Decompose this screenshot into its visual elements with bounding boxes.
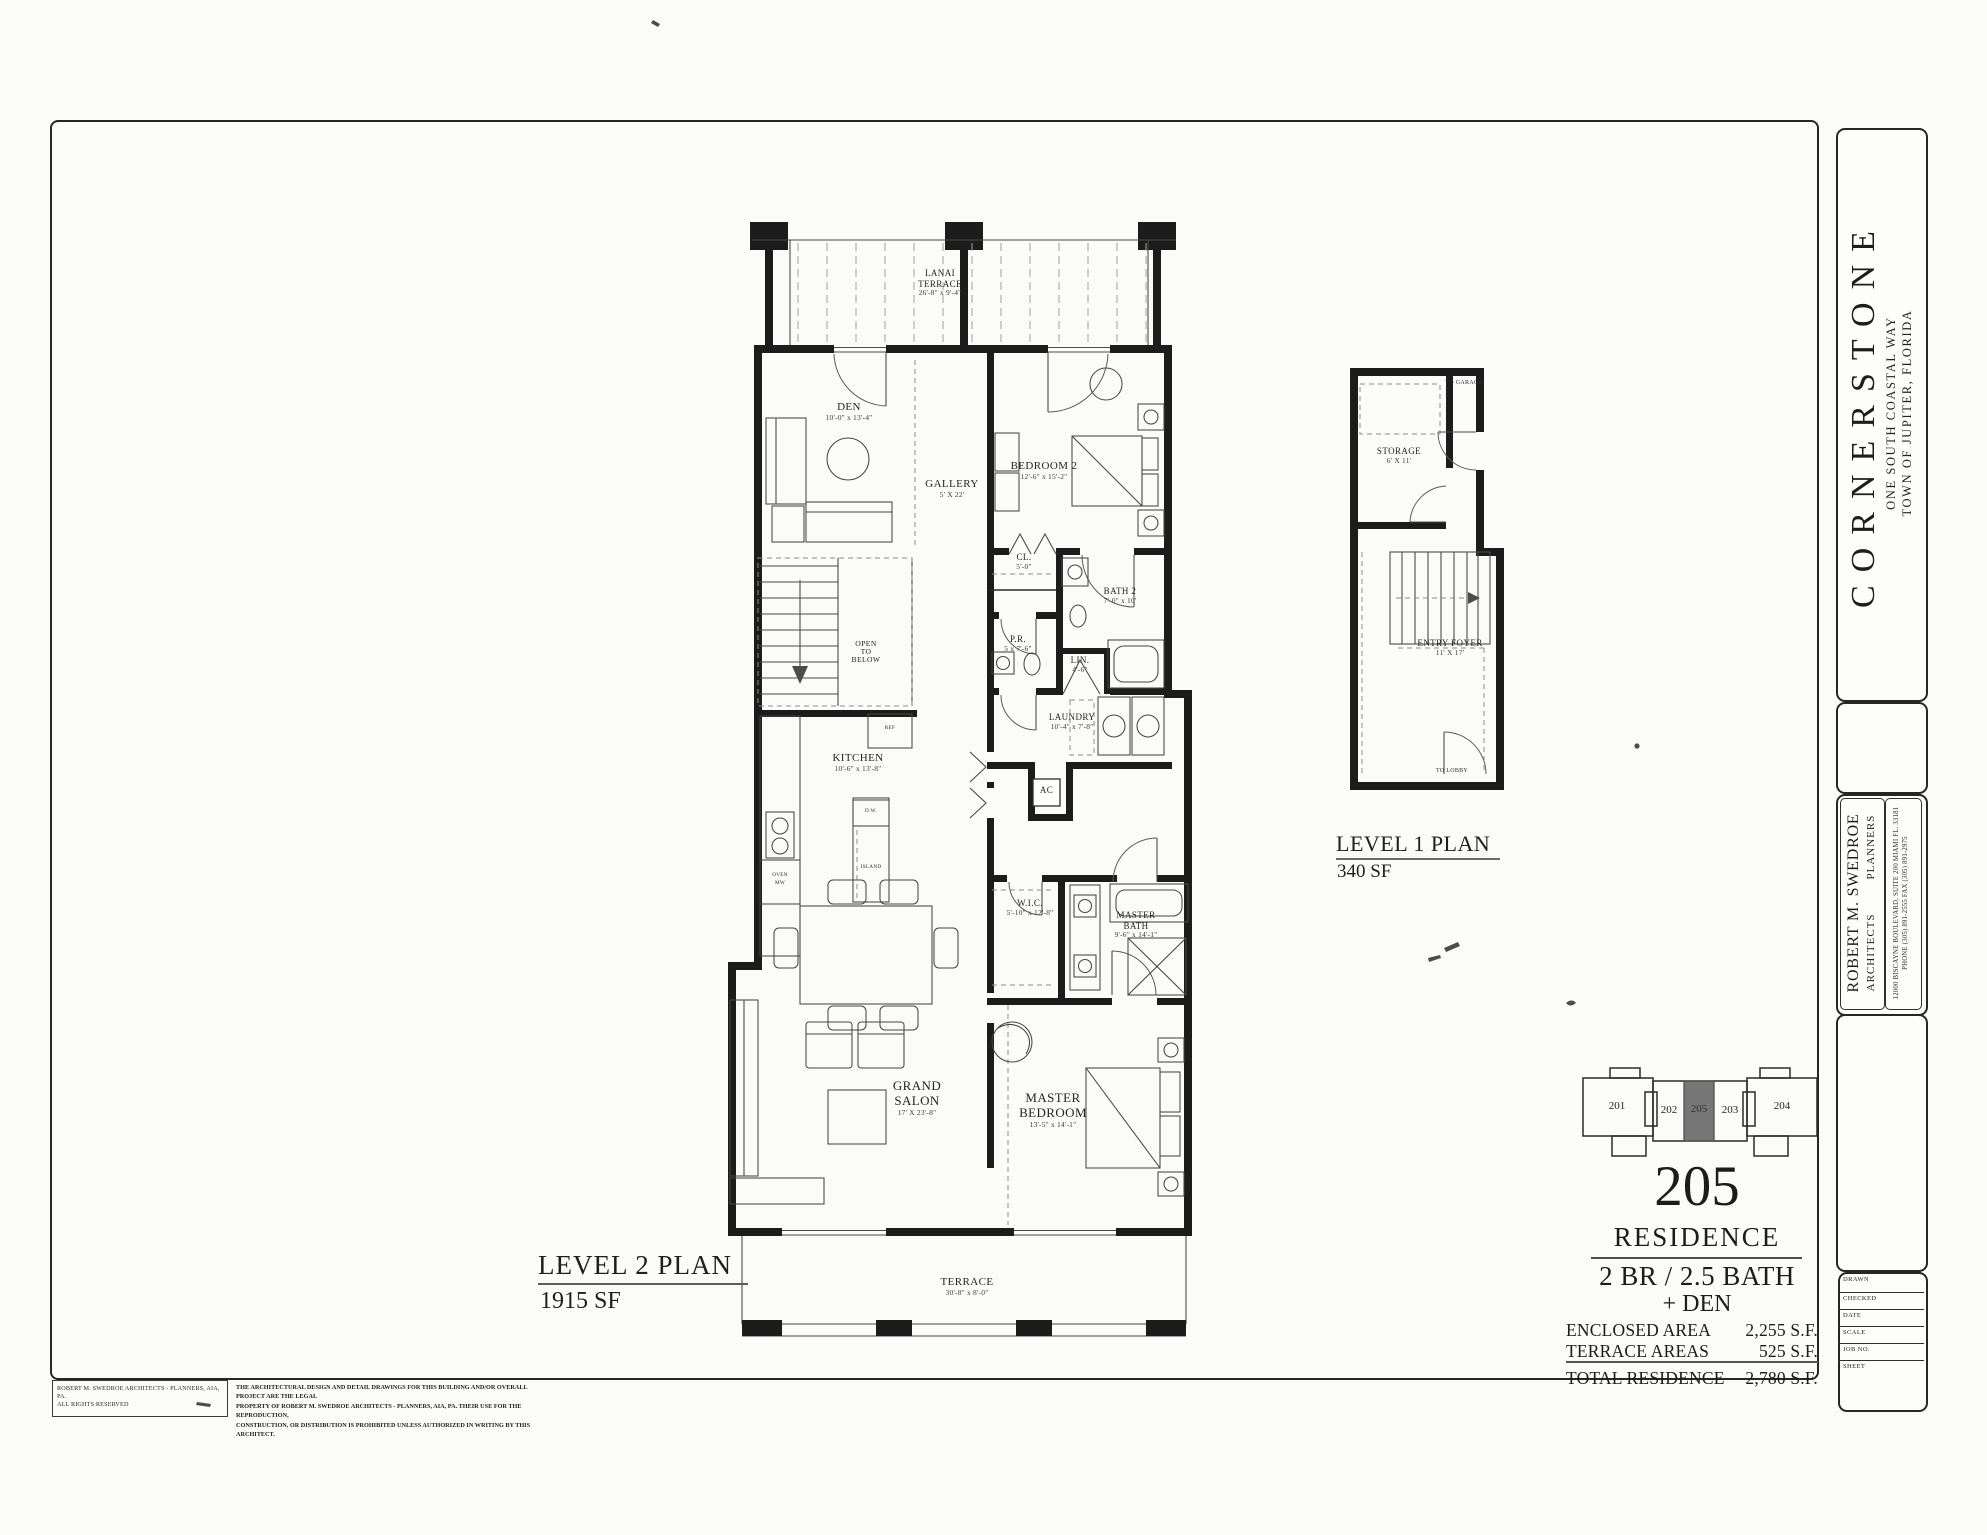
annotation-island: ISLAND: [861, 864, 882, 870]
titleblock-empty-panel: [1836, 1014, 1928, 1272]
annotation-mw: MW: [775, 880, 785, 886]
residence-label: RESIDENCE: [1614, 1222, 1781, 1253]
project-name: CORNERSTONE: [1845, 218, 1883, 608]
architect-office-line1: 12000 BISCAYNE BOULEVARD, SUITE 200 MIAM…: [1893, 807, 1902, 1000]
level2-plan-area: 1915 SF: [540, 1288, 621, 1315]
architect-title-planners: PLANNERS: [1865, 815, 1877, 880]
annotation-dw: D.W.: [865, 808, 877, 814]
room-label-gallery: GALLERY 5' X 22': [925, 478, 979, 500]
annotation-to-lobby: TO LOBBY: [1436, 768, 1468, 774]
room-label-storage: STORAGE 6' X 11': [1377, 446, 1421, 465]
area-value-total: 2,780 S.F.: [1745, 1368, 1818, 1389]
legal-line1: THE ARCHITECTURAL DESIGN AND DETAIL DRAW…: [236, 1383, 552, 1402]
annotation-oven: OVEN: [772, 872, 788, 878]
room-label-wic: W.I.C. 5'-10" x 12'-8": [1007, 898, 1054, 917]
area-value-enclosed: 2,255 S.F.: [1745, 1320, 1818, 1341]
sheet-border: [50, 120, 1819, 1380]
room-label-entry-foyer: ENTRY FOYER 11' X 17': [1417, 638, 1482, 657]
area-row-enclosed: ENCLOSED AREA 2,255 S.F.: [1566, 1320, 1818, 1341]
area-row-total: TOTAL RESIDENCE 2,780 S.F.: [1566, 1368, 1818, 1389]
area-row-terrace: TERRACE AREAS 525 S.F.: [1566, 1341, 1818, 1362]
field-label-scale: SCALE: [1838, 1329, 1866, 1336]
locator-unit-201: 201: [1609, 1100, 1626, 1112]
room-label-kitchen: KITCHEN 10'-6" x 13'-8": [832, 752, 883, 774]
room-label-bath2: BATH 2 7'-0" x 10': [1104, 586, 1137, 605]
legal-line3: CONSTRUCTION, OR DISTRIBUTION IS PROHIBI…: [236, 1421, 552, 1440]
level1-plan-area: 340 SF: [1337, 861, 1391, 883]
titleblock-logo-panel: [1836, 702, 1928, 794]
area-value-terrace: 525 S.F.: [1759, 1341, 1818, 1362]
room-label-powder-room: P.R. 5 x 7'-6": [1004, 634, 1031, 653]
scanned-floor-plan-sheet: { "sheet": { "project_name": "CORNERSTON…: [0, 0, 1987, 1535]
locator-unit-205-highlighted: 205: [1691, 1103, 1708, 1115]
area-label-total: TOTAL RESIDENCE: [1566, 1368, 1725, 1389]
field-label-checked: CHECKED: [1838, 1295, 1877, 1302]
architect-titles: ARCHITECTS PLANNERS: [1865, 815, 1877, 992]
field-divider: [1838, 1343, 1924, 1344]
area-total-separator: [1566, 1361, 1818, 1363]
field-label-drawn: DRAWN: [1838, 1276, 1869, 1283]
level2-plan-title: LEVEL 2 PLAN: [538, 1250, 748, 1285]
room-label-linen: LIN. 4'-6": [1071, 655, 1090, 674]
room-label-open-to-below: OPEN TO BELOW: [852, 640, 881, 664]
architect-name: ROBERT M. SWEDROE: [1845, 813, 1863, 992]
project-address-line2: TOWN OF JUPITER, FLORIDA: [1899, 310, 1915, 517]
unit-config-line1: 2 BR / 2.5 BATH: [1599, 1261, 1795, 1292]
field-divider: [1838, 1360, 1924, 1361]
unit-config-line2: + DEN: [1663, 1291, 1732, 1318]
room-label-master-bedroom: MASTER BEDROOM 13'-5" x 14'-1": [1019, 1090, 1087, 1130]
room-label-den: DEN 10'-0" x 13'-4": [826, 401, 873, 423]
area-label-enclosed: ENCLOSED AREA: [1566, 1320, 1711, 1341]
architect-office-line2: PHONE (305) 891-2555 FAX (305) 891-2975: [1902, 836, 1911, 970]
level1-plan-title: LEVEL 1 PLAN: [1336, 831, 1500, 860]
locator-unit-202: 202: [1661, 1104, 1678, 1116]
architect-name-group: ROBERT M. SWEDROE ARCHITECTS PLANNERS: [1841, 800, 1881, 1006]
field-label-job-no: JOB NO.: [1838, 1346, 1870, 1353]
room-label-ac: AC: [1040, 785, 1053, 796]
residence-underline: [1591, 1257, 1802, 1259]
copyright-box: ROBERT M. SWEDROE ARCHITECTS - PLANNERS,…: [52, 1380, 228, 1417]
architect-title-architects: ARCHITECTS: [1865, 914, 1877, 992]
copyright-line2: ALL RIGHTS RESERVED: [57, 1401, 223, 1409]
locator-unit-204: 204: [1774, 1100, 1791, 1112]
room-label-lanai-terrace: LANAI TERRACE 26'-8" x 9'-4": [918, 268, 962, 298]
room-label-bedroom2: BEDROOM 2 12'-6" x 15'-2": [1011, 460, 1078, 482]
locator-unit-203: 203: [1722, 1104, 1739, 1116]
field-divider: [1838, 1292, 1924, 1293]
project-name-group: CORNERSTONE ONE SOUTH COASTAL WAY TOWN O…: [1840, 135, 1920, 691]
field-divider: [1838, 1309, 1924, 1310]
room-label-laundry: LAUNDRY 10'-4" x 7'-8": [1049, 712, 1095, 731]
field-label-sheet: SHEET: [1838, 1363, 1865, 1370]
area-label-terrace: TERRACE AREAS: [1566, 1341, 1709, 1362]
field-divider: [1838, 1326, 1924, 1327]
room-label-closet: CL. 5'-0": [1016, 552, 1031, 571]
project-address-line1: ONE SOUTH COASTAL WAY: [1883, 316, 1899, 510]
copyright-line1: ROBERT M. SWEDROE ARCHITECTS - PLANNERS,…: [57, 1385, 223, 1401]
room-label-terrace: TERRACE 30'-8" x 8'-0": [941, 1276, 994, 1298]
architect-office-group: 12000 BISCAYNE BOULEVARD, SUITE 200 MIAM…: [1888, 800, 1916, 1006]
unit-number-large: 205: [1654, 1158, 1740, 1215]
room-label-grand-salon: GRAND SALON 17' X 23'-8": [893, 1078, 941, 1118]
field-label-date: DATE: [1838, 1312, 1861, 1319]
room-label-master-bath: MASTER BATH 9'-6" x 14'-1": [1115, 910, 1158, 940]
legal-line2: PROPERTY OF ROBERT M. SWEDROE ARCHITECTS…: [236, 1402, 552, 1421]
titleblock-fields-panel: [1838, 1272, 1928, 1412]
legal-disclaimer: THE ARCHITECTURAL DESIGN AND DETAIL DRAW…: [236, 1383, 552, 1439]
annotation-ref: REF: [885, 725, 895, 731]
annotation-to-garage: TO GARAGE: [1445, 380, 1482, 386]
